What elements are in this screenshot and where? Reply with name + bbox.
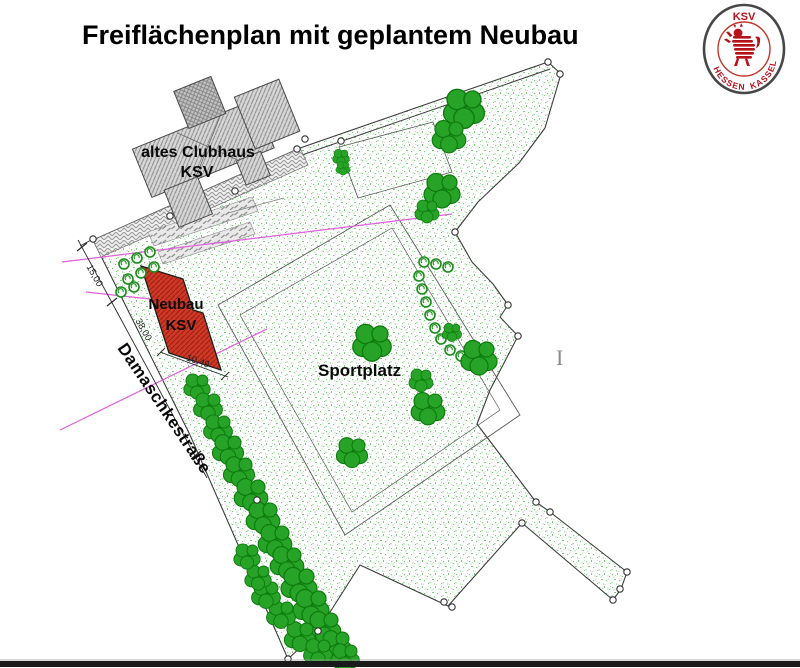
old-clubhouse-label-2: KSV (181, 164, 214, 181)
ksv-logo: KSV HESSEN KASSEL (699, 1, 789, 99)
page: { "title": "Freiflächenplan mit geplante… (0, 0, 800, 668)
cursor-artifact: I (556, 345, 563, 370)
dimension-15: 15,00 (84, 263, 105, 289)
bottom-bar (0, 661, 800, 667)
logo-text-top: KSV (733, 11, 756, 23)
sports-field-label: Sportplatz (318, 361, 401, 380)
new-building-label: Neubau (148, 296, 203, 313)
old-clubhouse-label: altes Clubhaus (141, 144, 255, 161)
site-plan: altes Clubhaus KSV Neubau KSV Sportplatz… (0, 0, 800, 668)
new-building-label-2: KSV (166, 317, 197, 334)
